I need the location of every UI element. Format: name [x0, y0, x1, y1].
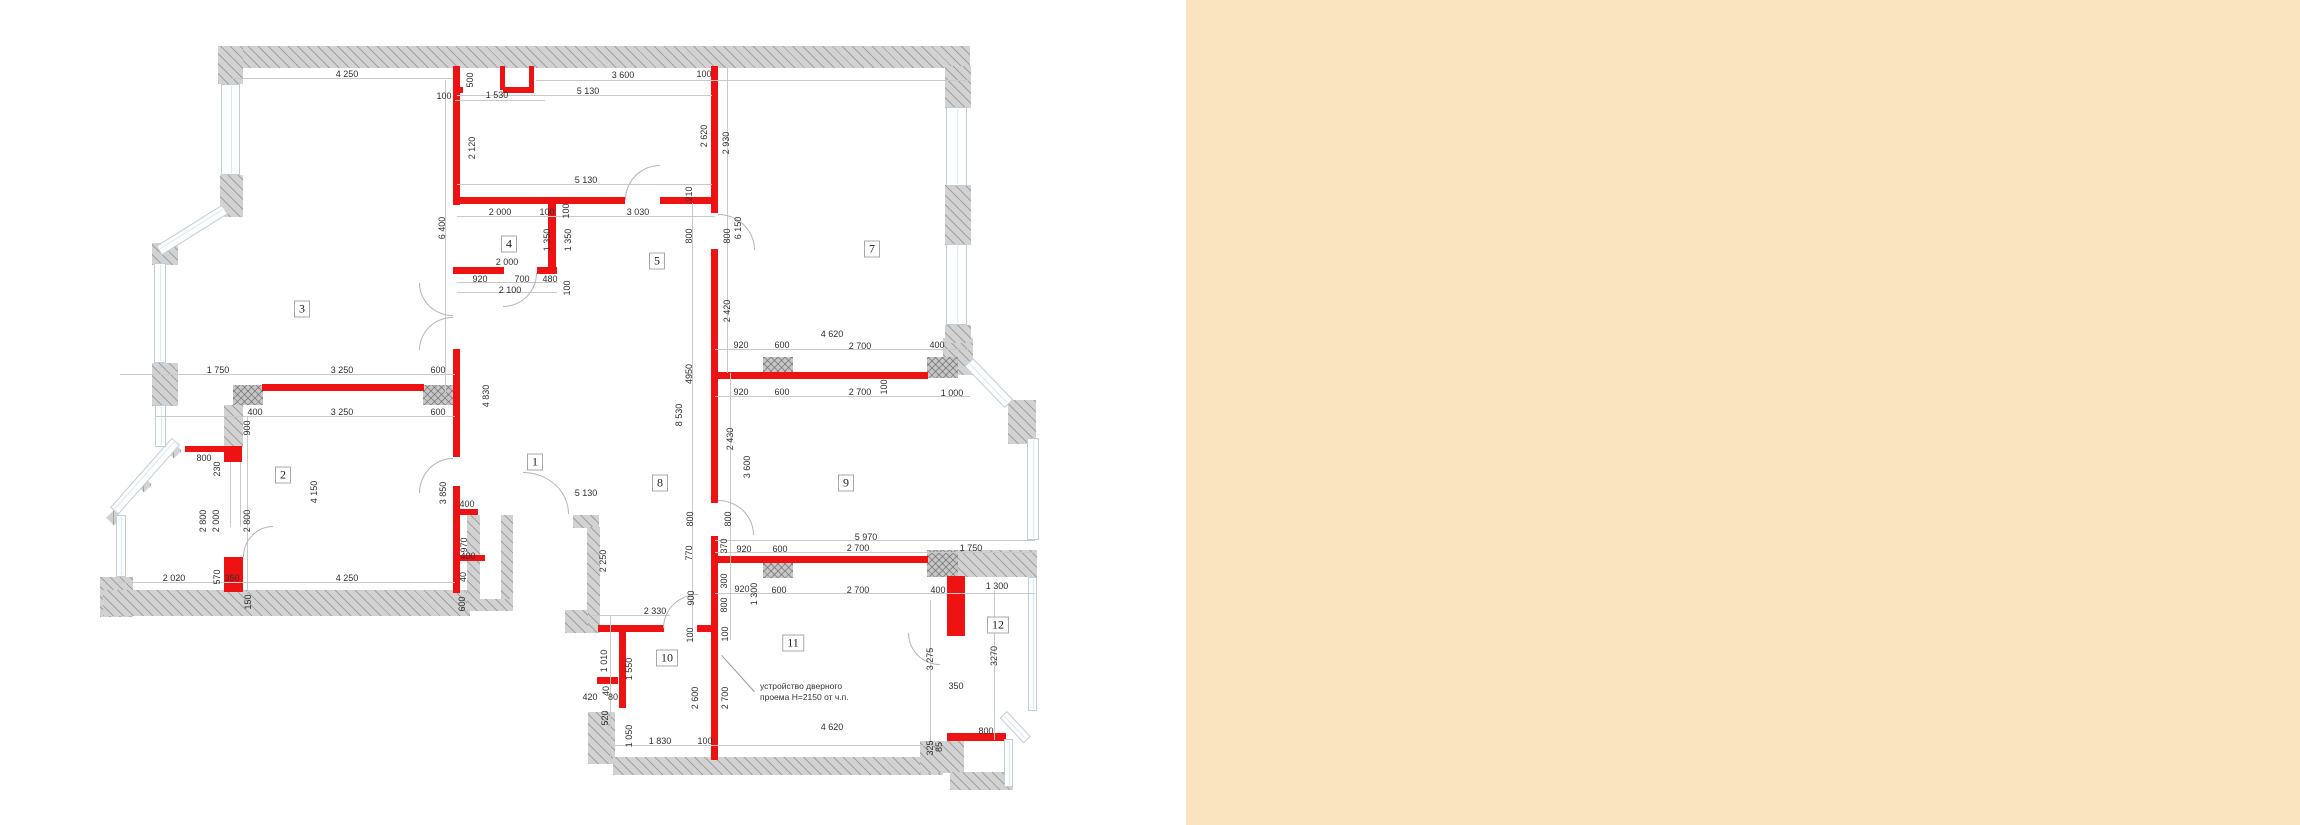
dimension-label: 500 [465, 72, 475, 87]
window [110, 438, 180, 515]
new-wall-segment [711, 556, 928, 563]
wall-segment [467, 515, 480, 611]
new-wall-segment [262, 384, 424, 391]
room-number: 3 [294, 301, 310, 318]
window [155, 405, 166, 447]
dimension-label: 4 830 [481, 385, 491, 408]
dimension-label: 4 620 [821, 722, 844, 732]
dimension-label: 2 700 [847, 543, 870, 553]
wall-segment [565, 610, 588, 633]
dimension-line [715, 396, 970, 397]
door-arc [625, 165, 660, 200]
window [154, 263, 166, 363]
dimension-label: 5 130 [575, 488, 598, 498]
new-wall-segment [453, 87, 463, 93]
dimension-label: 1 000 [941, 388, 964, 398]
dimension-label: 2 800 [242, 510, 252, 533]
wall-segment [467, 599, 513, 611]
dimension-label: 100 [697, 736, 712, 746]
dimension-label: 100 [685, 627, 695, 642]
new-wall-segment [598, 625, 664, 632]
dimension-label: 4 620 [821, 329, 844, 339]
dimension-label: 2 800 [198, 510, 208, 533]
dimension-label: 2 000 [211, 510, 221, 533]
dimension-label: 5 970 [855, 532, 878, 542]
dimension-label: 800 [684, 228, 694, 243]
dimension-label: 350 [224, 573, 239, 583]
dimension-label: 4950 [684, 364, 694, 384]
dimension-label: 920 [472, 274, 487, 284]
dimension-label: 4 250 [336, 69, 359, 79]
dimension-label: 3 250 [331, 407, 354, 417]
dimension-label: 100 [720, 626, 730, 641]
dimension-label: 3 850 [438, 482, 448, 505]
dimension-label: 2 620 [699, 125, 709, 148]
window [1027, 438, 1039, 540]
dimension-label: 3 275 [925, 648, 935, 671]
new-wall-segment [711, 536, 718, 760]
dimension-label: 2 250 [598, 550, 608, 573]
dimension-label: 2 120 [467, 137, 477, 160]
new-wall-segment [529, 66, 534, 92]
dimension-label: 2 430 [725, 428, 735, 451]
dimension-line [692, 203, 693, 640]
door-arc [419, 283, 453, 316]
room-number: 10 [656, 650, 678, 667]
dimension-label: 2 420 [722, 300, 732, 323]
dimension-label: 100 [436, 91, 451, 101]
dimension-label: 600 [774, 340, 789, 350]
dimension-label: 1 750 [207, 365, 230, 375]
dimension-label: 400 [460, 551, 475, 561]
dimension-label: 2 700 [847, 585, 870, 595]
dimension-label: 100 [539, 207, 554, 217]
dimension-label: 800 [722, 228, 732, 243]
dimension-label: 2 700 [849, 387, 872, 397]
dimension-label: 570 [212, 569, 222, 584]
dimension-label: 100 [879, 379, 889, 394]
dimension-line [715, 593, 1035, 594]
dimension-label: 400 [929, 340, 944, 350]
window [946, 107, 967, 186]
door-arc [908, 633, 940, 665]
door-arc [523, 472, 569, 514]
dimension-label: 100 [696, 69, 711, 79]
room-number: 4 [501, 236, 517, 253]
dimension-label: 2 930 [721, 132, 731, 155]
dimension-label: 370 [719, 538, 729, 553]
dimension-label: 600 [430, 407, 445, 417]
dimension-label: 100 [562, 280, 572, 295]
wall-segment [152, 363, 178, 406]
dimension-label: 1 830 [649, 736, 672, 746]
dimension-label: 600 [774, 387, 789, 397]
dimension-label: 100 [561, 203, 571, 218]
dimension-label: 3 250 [331, 365, 354, 375]
wall-segment [945, 325, 971, 343]
room-number: 8 [652, 475, 668, 492]
dimension-label: 800 [685, 511, 695, 526]
dimension-label: 900 [686, 590, 696, 605]
window [116, 515, 126, 577]
dimension-line [715, 552, 1035, 553]
dimension-label: 3270 [989, 646, 999, 666]
dimension-label: 800 [978, 726, 993, 736]
window [1028, 577, 1037, 711]
wall-segment [103, 590, 470, 616]
room-number: 12 [987, 617, 1009, 634]
dimension-label: 900 [242, 420, 252, 435]
new-wall-segment [711, 66, 718, 213]
dimension-label: 6 150 [733, 217, 743, 240]
new-wall-segment [947, 576, 965, 636]
dimension-label: 3 600 [612, 70, 635, 80]
dimension-label: 210 [684, 186, 694, 201]
dimension-label: 2 020 [163, 573, 186, 583]
dimension-label: 2 000 [489, 207, 512, 217]
dimension-label: 230 [212, 461, 222, 476]
dimension-label: 3 030 [627, 207, 650, 217]
door-opening-note: устройство дверного проема Н=2150 от ч.п… [760, 681, 849, 703]
dimension-label: 2 700 [720, 687, 730, 710]
dimension-label: 150 [243, 594, 253, 609]
new-wall-segment [459, 509, 478, 515]
dimension-label: 350 [948, 681, 963, 691]
dimension-label: 920 [736, 544, 751, 554]
dimension-label: 80 [608, 692, 618, 702]
wall-segment [220, 46, 970, 68]
room-number: 9 [838, 475, 854, 492]
dimension-label: 5 130 [577, 86, 600, 96]
dimension-line [930, 600, 931, 760]
new-wall-segment [947, 733, 1006, 741]
door-arc [419, 317, 453, 350]
dimension-label: 600 [430, 365, 445, 375]
dimension-label: 4 250 [336, 573, 359, 583]
wall-segment [587, 527, 600, 633]
window [221, 84, 240, 175]
dimension-label: 1 010 [599, 650, 609, 673]
floor-plan: 4 2501005001 5303 6001005 1302 1202 6202… [0, 0, 2300, 825]
pillar-segment [233, 385, 263, 405]
window [156, 205, 228, 256]
window [1004, 739, 1013, 787]
dimension-label: 520 [600, 710, 610, 725]
room-number: 1 [527, 454, 543, 471]
dimension-label: 420 [582, 692, 597, 702]
wall-segment [613, 757, 943, 775]
dimension-label: 1 550 [624, 658, 634, 681]
new-wall-segment [711, 372, 928, 379]
dimension-label: 1 750 [960, 543, 983, 553]
dimension-label: 300 [719, 573, 729, 588]
room-number: 7 [864, 241, 880, 258]
wall-segment [224, 405, 243, 447]
dimension-label: 1 350 [563, 229, 573, 252]
dimension-label: 2 700 [849, 341, 872, 351]
dimension-label: 2 600 [690, 687, 700, 710]
room-number: 11 [782, 635, 804, 652]
dimension-label: 5 130 [575, 175, 598, 185]
wall-segment [945, 185, 971, 245]
new-wall-segment [597, 677, 618, 684]
dimension-label: 480 [542, 274, 557, 284]
dimension-label: 800 [196, 453, 211, 463]
dimension-label: 920 [733, 387, 748, 397]
room-number: 5 [649, 253, 665, 270]
wall-segment [945, 66, 971, 108]
note-line-1: устройство дверного [760, 681, 849, 692]
dimension-label: 400 [930, 585, 945, 595]
dimension-label: 2 330 [644, 606, 667, 616]
pillar-segment [927, 550, 958, 577]
new-wall-segment [500, 66, 505, 90]
dimension-label: 1 300 [986, 581, 1009, 591]
dimension-label: 400 [459, 499, 474, 509]
new-wall-segment [453, 349, 460, 457]
new-wall-segment [537, 267, 557, 274]
dimension-label: 700 [514, 274, 529, 284]
window [946, 244, 967, 325]
room-number: 2 [275, 467, 291, 484]
dimension-label: 40 [458, 572, 468, 582]
dimension-label: 8 530 [674, 404, 684, 427]
dimension-line [536, 80, 970, 81]
dimension-label: 85 [934, 742, 944, 752]
dimension-label: 770 [684, 545, 694, 560]
dimension-label: 600 [771, 585, 786, 595]
dimension-label: 1 350 [542, 229, 552, 252]
new-wall-segment [224, 447, 242, 462]
dimension-line [120, 374, 455, 375]
dimension-label: 2 000 [496, 257, 519, 267]
dimension-line [240, 462, 241, 527]
new-wall-segment [453, 267, 504, 274]
pillar-segment [927, 357, 958, 378]
dimension-label: 920 [733, 340, 748, 350]
dimension-line [455, 100, 545, 101]
dimension-line [155, 416, 455, 417]
dimension-label: 1 300 [749, 583, 759, 606]
dimension-label: 4 150 [309, 481, 319, 504]
pillar-segment [423, 385, 453, 405]
wall-segment [501, 515, 513, 611]
dimension-label: 600 [457, 596, 467, 611]
dimension-label: 920 [734, 584, 749, 594]
side-panel [1186, 0, 2300, 825]
dimension-label: 400 [247, 407, 262, 417]
dimension-label: 800 [719, 597, 729, 612]
note-line-2: проема Н=2150 от ч.п. [760, 692, 849, 703]
dimension-label: 600 [772, 544, 787, 554]
new-wall-segment [453, 197, 625, 204]
window [964, 358, 1013, 408]
dimension-label: 1 050 [624, 725, 634, 748]
dimension-label: 2 100 [499, 285, 522, 295]
dimension-label: 1 530 [486, 90, 509, 100]
dimension-label: 3 600 [742, 456, 752, 479]
dimension-line [230, 462, 231, 527]
dimension-label: 6 400 [437, 217, 447, 240]
dimension-label: 800 [723, 511, 733, 526]
